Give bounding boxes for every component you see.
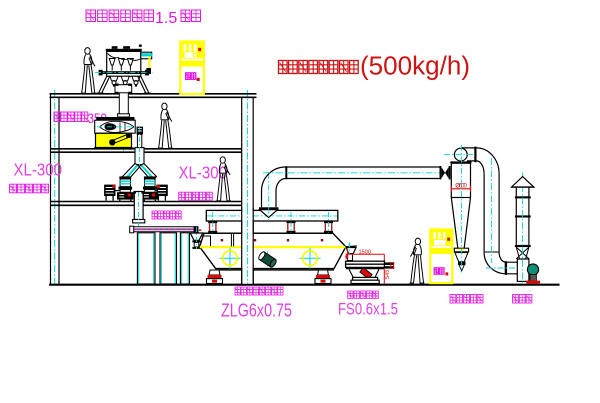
svg-text:(500kg/h): (500kg/h) xyxy=(360,53,470,81)
svg-text:1.5: 1.5 xyxy=(155,10,177,27)
svg-text:545: 545 xyxy=(385,270,391,279)
svg-text:FS0.6x1.5: FS0.6x1.5 xyxy=(338,301,398,319)
svg-text:ZLG6x0.75: ZLG6x0.75 xyxy=(221,300,292,321)
svg-text:XL-300: XL-300 xyxy=(14,160,63,180)
svg-text:1500: 1500 xyxy=(359,249,371,255)
